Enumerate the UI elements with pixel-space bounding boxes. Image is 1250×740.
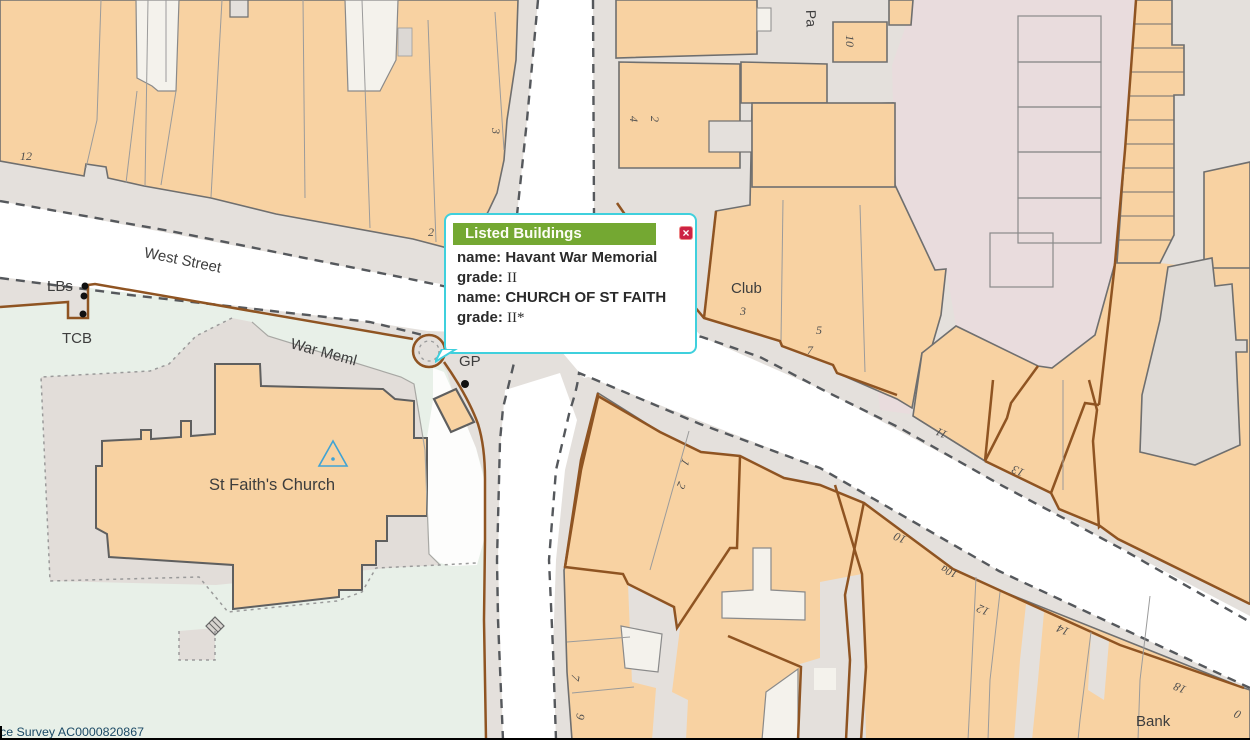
svg-text:Club: Club [731, 280, 762, 297]
svg-text:St Faith's Church: St Faith's Church [209, 476, 335, 494]
svg-text:Pa: Pa [803, 10, 820, 28]
svg-text:LBs: LBs [47, 278, 73, 295]
svg-text:3: 3 [489, 127, 503, 134]
svg-text:7: 7 [807, 343, 814, 357]
svg-text:4: 4 [627, 116, 641, 122]
svg-text:5: 5 [816, 323, 822, 337]
svg-text:10: 10 [843, 35, 857, 47]
svg-text:Bank: Bank [1136, 713, 1171, 730]
svg-text:12: 12 [20, 149, 32, 163]
svg-text:ce Survey AC0000820867: ce Survey AC0000820867 [0, 725, 144, 739]
svg-text:2: 2 [648, 116, 662, 122]
svg-text:3: 3 [739, 304, 746, 318]
svg-text:TCB: TCB [62, 330, 92, 347]
svg-text:2: 2 [428, 225, 434, 239]
